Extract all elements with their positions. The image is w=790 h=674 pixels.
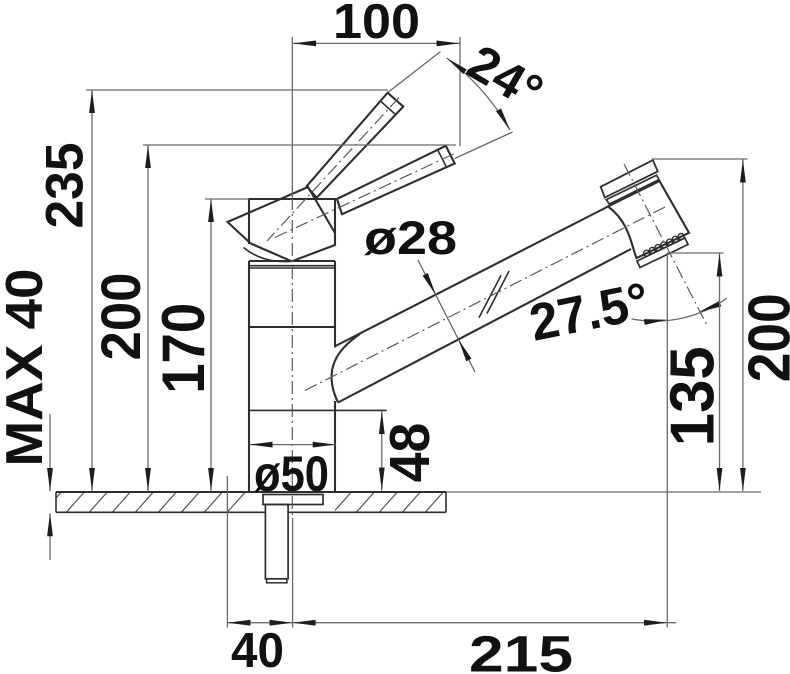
svg-text:215: 215 xyxy=(469,626,573,674)
svg-text:ø28: ø28 xyxy=(364,211,457,264)
svg-text:100: 100 xyxy=(333,0,420,49)
svg-text:48: 48 xyxy=(378,423,442,483)
svg-text:235: 235 xyxy=(36,143,95,229)
svg-text:40: 40 xyxy=(231,624,284,674)
svg-text:135: 135 xyxy=(658,346,727,446)
svg-text:MAX 40: MAX 40 xyxy=(0,269,54,467)
svg-text:200: 200 xyxy=(737,293,790,382)
svg-text:170: 170 xyxy=(150,303,217,394)
svg-text:ø50: ø50 xyxy=(254,446,329,502)
svg-text:200: 200 xyxy=(89,273,152,361)
